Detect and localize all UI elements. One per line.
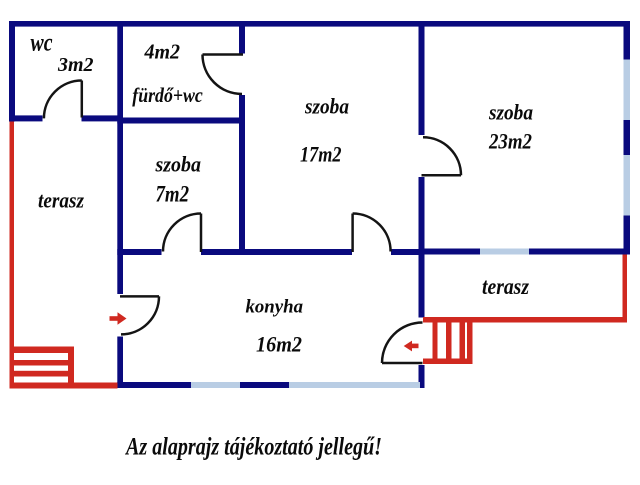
svg-text:4m2: 4m2 [144, 40, 181, 64]
svg-text:17m2: 17m2 [300, 142, 342, 167]
svg-text:szoba: szoba [304, 94, 349, 119]
svg-text:16m2: 16m2 [256, 332, 302, 357]
svg-text:Az alaprajz tájékoztató jelleg: Az alaprajz tájékoztató jellegű! [124, 434, 382, 461]
svg-text:fürdő+wc: fürdő+wc [132, 83, 203, 107]
svg-text:szoba: szoba [155, 152, 201, 177]
svg-text:terasz: terasz [38, 188, 84, 213]
svg-text:konyha: konyha [246, 297, 304, 318]
svg-text:3m2: 3m2 [57, 54, 93, 76]
svg-text:wc: wc [31, 30, 53, 57]
svg-text:7m2: 7m2 [156, 182, 190, 207]
svg-text:23m2: 23m2 [488, 129, 532, 154]
svg-text:szoba: szoba [488, 100, 533, 125]
svg-text:terasz: terasz [482, 274, 529, 299]
